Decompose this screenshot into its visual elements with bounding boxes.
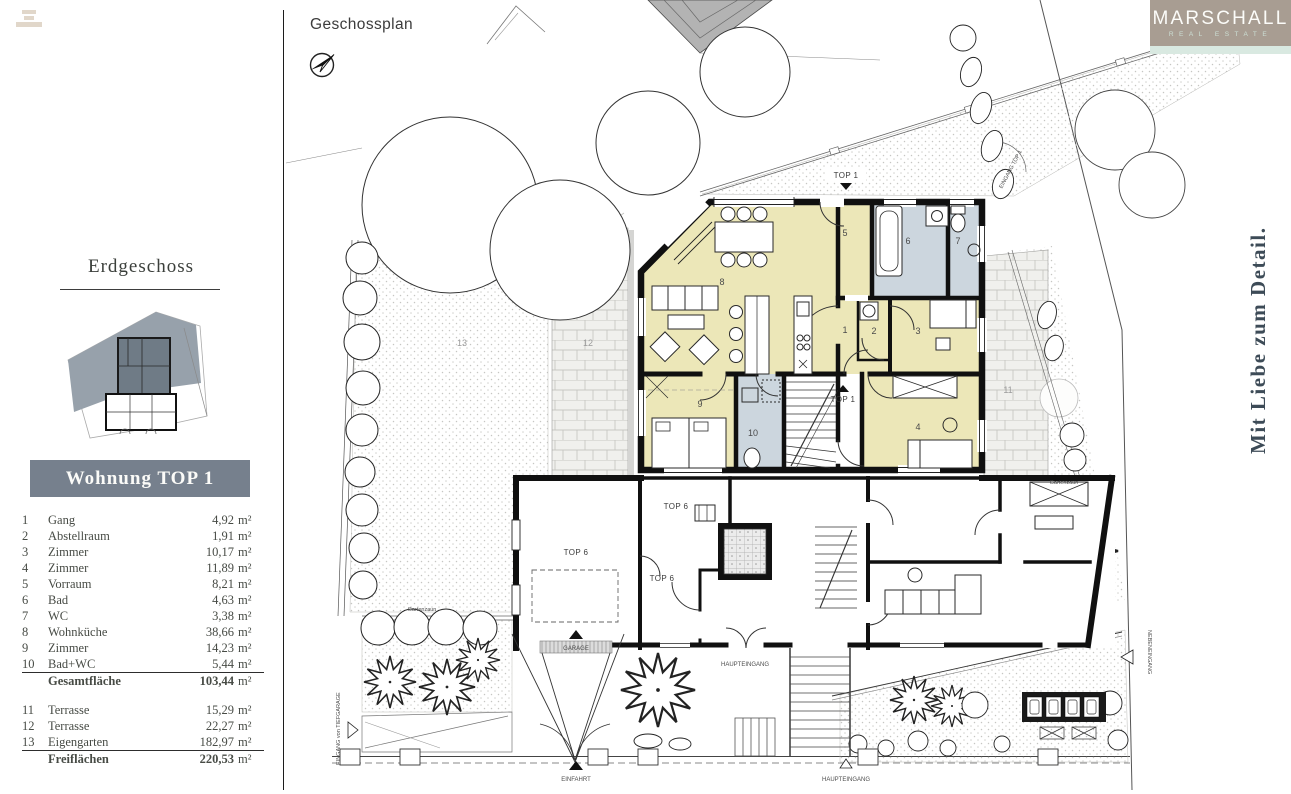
table-row: 3Zimmer10,17m² xyxy=(22,544,264,560)
logo-subtitle: REAL ESTATE xyxy=(1169,31,1272,38)
table-row: 7WC3,38m² xyxy=(22,608,264,624)
label-garage: GARAGE xyxy=(563,646,589,652)
label-einfahrt: EINFAHRT xyxy=(561,777,591,783)
room-number-6: 6 xyxy=(905,236,910,246)
label-top6-garage: TOP 6 xyxy=(564,548,589,557)
logo-name: MARSCHALL xyxy=(1153,9,1289,28)
table-row: 6Bad4,63m² xyxy=(22,592,264,608)
label-area-11: 11 xyxy=(1003,385,1012,395)
label-gartenzaun-left: Gartenzaun xyxy=(408,607,437,613)
table-row: 1Gang4,92m² xyxy=(22,512,264,528)
site-overview-thumbnail xyxy=(62,298,220,450)
page-title: Geschossplan xyxy=(310,16,413,34)
tiefgarage-arrow xyxy=(348,722,358,738)
room-number-2: 2 xyxy=(871,326,876,336)
north-arrow-icon xyxy=(306,48,340,82)
room-table: 1Gang4,92m² 2Abstellraum1,91m² 3Zimmer10… xyxy=(22,512,264,767)
floor-title-rule xyxy=(60,289,220,290)
unit-banner: Wohnung TOP 1 xyxy=(30,460,250,497)
room-number-5: 5 xyxy=(842,228,847,238)
table-row: 10Bad+WC5,44m² xyxy=(22,656,264,672)
einfahrt-arrow xyxy=(569,761,583,770)
total-row: Gesamtfläche103,44m² xyxy=(22,672,264,689)
sidebar-divider xyxy=(283,10,284,790)
table-row: 2Abstellraum1,91m² xyxy=(22,528,264,544)
floor-title: Erdgeschoss xyxy=(0,256,282,278)
label-haupteingang-door: HAUPTEINGANG xyxy=(721,662,769,668)
marschall-logo: MARSCHALL REAL ESTATE xyxy=(1150,0,1291,46)
room-number-9: 9 xyxy=(697,399,702,409)
room-number-7: 7 xyxy=(955,236,960,246)
room-number-4: 4 xyxy=(915,422,920,432)
table-row: 11Terrasse15,29m² xyxy=(22,702,264,718)
label-top6-room: TOP 6 xyxy=(650,574,675,583)
label-eingang-tiefgarage: EINGANG von TIEFGARAGE xyxy=(336,692,342,765)
label-gartenzaun-right: Gartenzaun xyxy=(1050,480,1079,486)
table-row: 4Zimmer11,89m² xyxy=(22,560,264,576)
room-number-10: 10 xyxy=(748,428,758,438)
label-nebeneingang: NEBENEINGANG xyxy=(1146,630,1152,674)
label-top1-mid: TOP 1 xyxy=(831,395,856,404)
table-row: 5Vorraum8,21m² xyxy=(22,576,264,592)
table-row: 8Wohnküche38,66m² xyxy=(22,624,264,640)
label-haupteingang-street: HAUPTEINGANG xyxy=(822,777,870,783)
table-row: 12Terrasse22,27m² xyxy=(22,718,264,734)
floorplan-sheet: TOP 1 TOP 1 TOP 6 TOP 6 TOP 6 GARAGE EIN… xyxy=(0,0,1291,794)
label-area-13: 13 xyxy=(457,338,467,348)
room-number-8: 8 xyxy=(719,277,724,287)
room-number-1: 1 xyxy=(842,325,847,335)
table-row: 9Zimmer14,23m² xyxy=(22,640,264,656)
label-area-12: 12 xyxy=(583,338,593,348)
total-row: Freiflächen220,53m² xyxy=(22,750,264,767)
label-top6-hall: TOP 6 xyxy=(664,502,689,511)
logo-accent-strip xyxy=(1150,46,1291,54)
label-top1-upper: TOP 1 xyxy=(834,171,859,180)
table-row: 13Eigengarten182,97m² xyxy=(22,734,264,750)
sidebar: Erdgeschoss Wohnung TOP 1 1Gang4,92m² 2A… xyxy=(0,0,282,794)
brand-tagline: Mit Liebe zum Detail. xyxy=(1246,200,1278,480)
room-number-3: 3 xyxy=(915,326,920,336)
corner-stamp xyxy=(16,10,42,29)
